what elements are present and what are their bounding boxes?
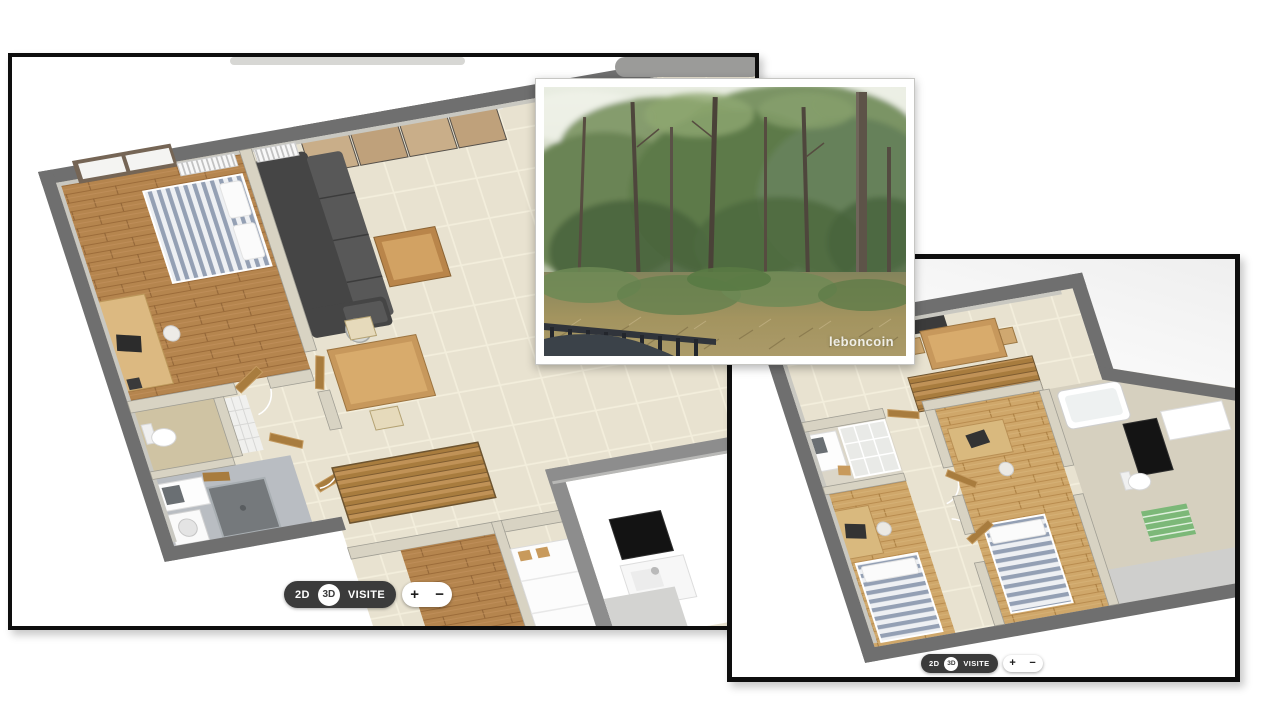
stool (838, 465, 851, 475)
dining-chair (345, 316, 377, 340)
mode-visite-button[interactable]: VISITE (963, 659, 989, 668)
towel (202, 472, 230, 482)
mode-toggle: 2D 3D VISITE (284, 581, 396, 608)
viewer-controls: 2D 3D VISITE + − (284, 581, 452, 608)
zoom-out-button[interactable]: − (435, 587, 444, 602)
terrace-rail (615, 57, 755, 77)
photo-card-forest-view: leboncoin (535, 78, 915, 365)
mode-2d-button[interactable]: 2D (929, 659, 939, 668)
mode-2d-button[interactable]: 2D (295, 589, 310, 601)
laptop (116, 335, 142, 353)
mode-3d-button[interactable]: 3D (318, 584, 340, 606)
dining-chair (370, 406, 404, 430)
zoom-in-button[interactable]: + (1009, 658, 1015, 669)
mode-toggle: 2D 3D VISITE (921, 654, 998, 673)
mode-visite-button[interactable]: VISITE (348, 589, 385, 601)
collage-canvas: 2D 3D VISITE + − (0, 0, 1280, 720)
terrace-rail-thin (230, 57, 465, 65)
leboncoin-watermark: leboncoin (829, 334, 894, 349)
forest-photo: leboncoin (544, 87, 906, 356)
mode-3d-button[interactable]: 3D (944, 657, 958, 671)
laptop (845, 524, 867, 539)
forest-photo-image (544, 87, 906, 356)
zoom-controls: + − (1003, 655, 1043, 672)
zoom-out-button[interactable]: − (1029, 658, 1035, 669)
zoom-in-button[interactable]: + (410, 587, 419, 602)
zoom-controls: + − (402, 582, 452, 607)
viewer-controls: 2D 3D VISITE + − (921, 654, 1043, 673)
